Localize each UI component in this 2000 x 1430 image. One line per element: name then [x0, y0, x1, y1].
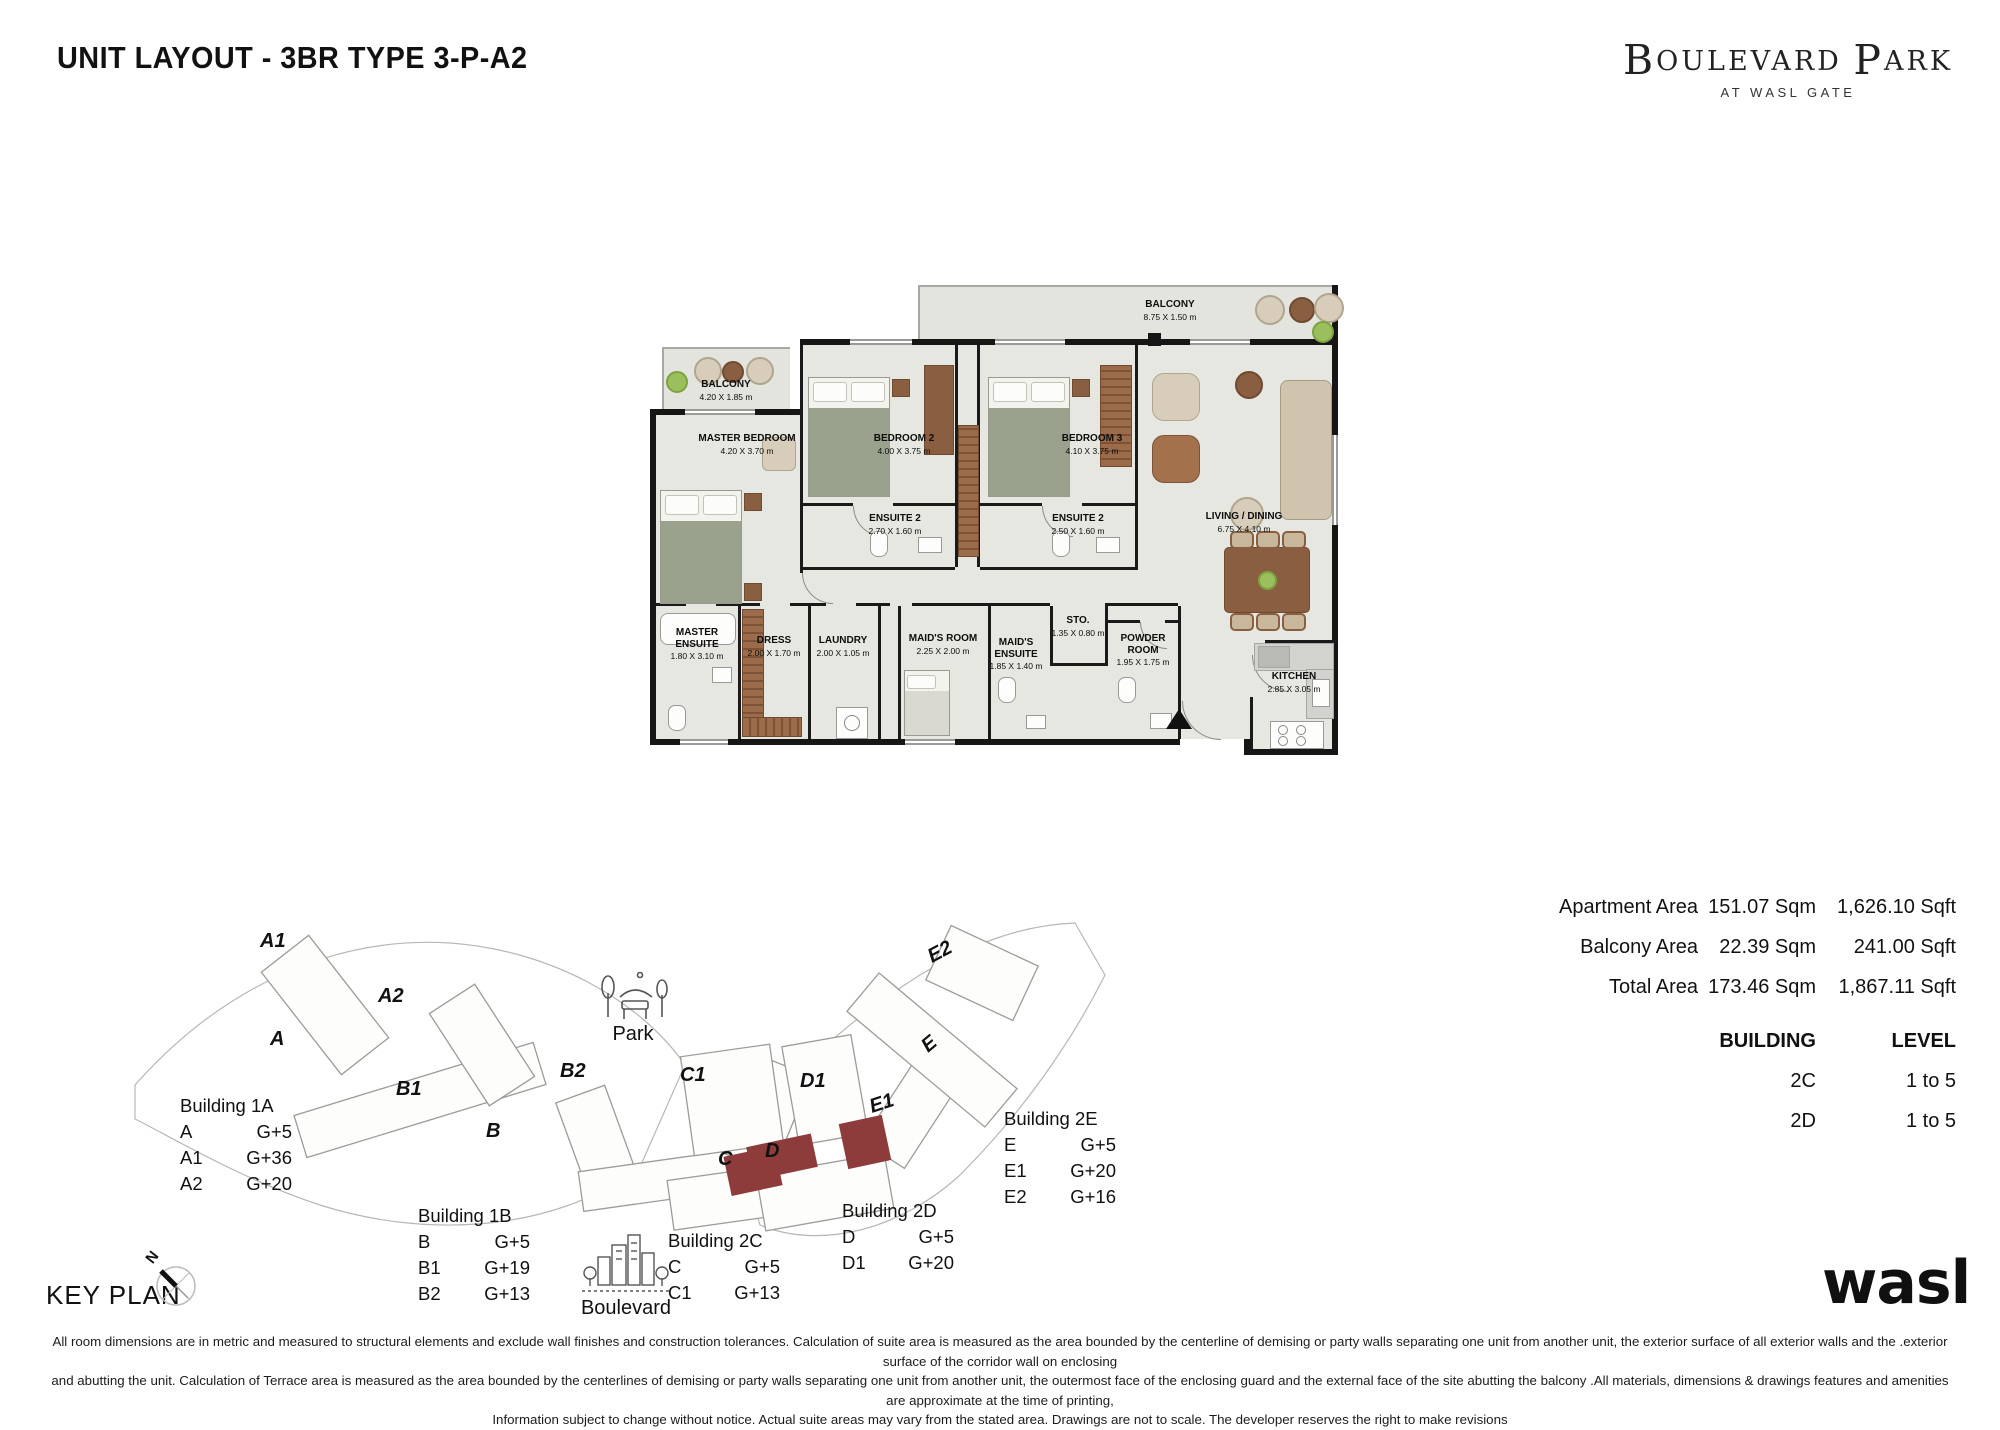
sofa: [1280, 380, 1332, 520]
building-group-1a: Building 1A AG+5 A1G+36 A2G+20: [180, 1093, 292, 1197]
room-label-maids-room: MAID'S ROOM2.25 X 2.00 m: [909, 633, 978, 657]
toilet: [1118, 677, 1136, 703]
room-label-maids-ensuite: MAID'S ENSUITE1.85 X 1.40 m: [985, 637, 1047, 673]
disclaimer-line: All room dimensions are in metric and me…: [40, 1332, 1960, 1371]
boulevard-park-logo: BOULEVARD PARK AT WASL GATE: [1620, 46, 1956, 100]
room-label-balcony-left: BALCONY4.20 X 1.85 m: [700, 379, 753, 403]
window: [905, 739, 955, 745]
balcony-chair: [1314, 293, 1344, 323]
room-label-laundry: LAUNDRY2.00 X 1.05 m: [817, 635, 870, 659]
railing: [918, 285, 1338, 287]
boulevard-label: Boulevard: [581, 1297, 671, 1319]
bedroom3-bed: [988, 377, 1070, 497]
coffee-table: [1235, 371, 1263, 399]
disclaimer: All room dimensions are in metric and me…: [40, 1332, 1960, 1430]
unit-highlight-d2: [839, 1115, 892, 1169]
side-table: [892, 379, 910, 397]
side-table: [744, 583, 762, 601]
kitchen-sink: [1258, 646, 1290, 668]
dining-chair: [1282, 531, 1306, 549]
room-label-ensuite-2b: ENSUITE 22.50 X 1.60 m: [1052, 513, 1105, 537]
table-row: Total Area173.46 Sqm1,867.11 Sqft: [1548, 976, 1956, 999]
room-label-kitchen: KITCHEN2.85 X 3.05 m: [1268, 671, 1321, 695]
wall: [1105, 606, 1108, 666]
map-label-d: D: [765, 1140, 779, 1162]
window: [995, 339, 1065, 345]
dress-wardrobe: [742, 717, 802, 737]
wall: [803, 567, 955, 570]
sink: [1026, 715, 1046, 729]
map-label-a: A: [269, 1028, 284, 1050]
wall: [980, 503, 1042, 506]
sink: [1096, 537, 1120, 553]
room-label-dress: DRESS2.00 X 1.70 m: [748, 635, 801, 659]
railing: [662, 347, 790, 349]
wall: [1105, 620, 1140, 623]
room-label-ensuite-2a: ENSUITE 22.70 X 1.60 m: [869, 513, 922, 537]
room-label-balcony-top: BALCONY8.75 X 1.50 m: [1144, 299, 1197, 323]
wall: [980, 567, 1138, 570]
building-group-2c: Building 2C CG+5 C1G+13: [668, 1228, 780, 1306]
wall: [912, 603, 1050, 606]
wall: [808, 606, 811, 739]
table-row: Balcony Area22.39 Sqm241.00 Sqft: [1548, 936, 1956, 959]
wall: [650, 409, 656, 745]
wall: [800, 345, 803, 573]
building-group-2d: Building 2D DG+5 D1G+20: [842, 1198, 954, 1276]
wall: [1082, 503, 1138, 506]
armchair: [1152, 435, 1200, 483]
wasl-logo: wasl: [1822, 1248, 1970, 1318]
wall: [893, 503, 958, 506]
map-label-b1: B1: [396, 1078, 422, 1100]
park-label: Park: [612, 1023, 654, 1045]
page-title: UNIT LAYOUT - 3BR TYPE 3-P-A2: [57, 40, 528, 76]
building-group-2e: Building 2E EG+5 E1G+20 E2G+16: [1004, 1106, 1116, 1210]
floor-plan: BALCONY8.75 X 1.50 m BALCONY4.20 X 1.85 …: [650, 285, 1340, 765]
railing: [918, 285, 920, 339]
toilet: [998, 677, 1016, 703]
wall: [1105, 603, 1178, 606]
wall: [878, 606, 881, 739]
room-label-master-ensuite: MASTER ENSUITE1.80 X 3.10 m: [666, 627, 728, 663]
dining-chair: [1230, 613, 1254, 631]
table-plant: [1258, 571, 1277, 590]
room-label-master-bedroom: MASTER BEDROOM4.20 X 3.70 m: [698, 433, 795, 457]
map-label-b2: B2: [560, 1060, 586, 1082]
wall: [803, 503, 853, 506]
balcony-door-marker: [1148, 333, 1161, 346]
side-table: [1072, 379, 1090, 397]
railing: [662, 347, 664, 413]
dining-chair: [1256, 613, 1280, 631]
wall: [738, 606, 741, 739]
map-label-a1: A1: [259, 930, 286, 952]
sink: [918, 537, 942, 553]
table-row: 2D1 to 5: [1548, 1110, 1956, 1133]
stove-burner: [1296, 725, 1306, 735]
window: [680, 739, 728, 745]
entrance-arrow: [1166, 709, 1192, 729]
armchair: [1152, 373, 1200, 421]
wardrobe: [958, 425, 979, 557]
wall: [898, 606, 901, 739]
building-level-header: BUILDINGLEVEL: [1548, 1030, 1956, 1053]
map-label-c: C: [718, 1148, 733, 1170]
washer-door: [844, 715, 860, 731]
plant: [1312, 321, 1334, 343]
map-label-c1: C1: [680, 1064, 706, 1086]
disclaimer-line: Information subject to change without no…: [40, 1410, 1960, 1430]
area-table: Apartment Area151.07 Sqm1,626.10 Sqft Ba…: [1548, 896, 1956, 1150]
wall: [856, 603, 890, 606]
sink: [712, 667, 732, 683]
maid-bed: [904, 670, 950, 736]
stove-burner: [1278, 725, 1288, 735]
balcony-chair: [1255, 295, 1285, 325]
window: [1190, 339, 1250, 345]
brand-name: BOULEVARD PARK: [1620, 46, 1956, 77]
boulevard-icon: [582, 1235, 670, 1291]
table-row: Apartment Area151.07 Sqm1,626.10 Sqft: [1548, 896, 1956, 919]
toilet: [668, 705, 686, 731]
room-label-powder-room: POWDER ROOM1.95 X 1.75 m: [1112, 633, 1174, 669]
brand-tagline: AT WASL GATE: [1620, 85, 1956, 100]
map-label-b: B: [486, 1120, 500, 1142]
wall: [1135, 345, 1138, 567]
building-group-1b: Building 1B BG+5 B1G+19 B2G+13: [418, 1203, 530, 1307]
window: [1332, 435, 1338, 525]
wall: [988, 606, 991, 739]
window: [850, 339, 912, 345]
room-label-sto: STO.1.35 X 0.80 m: [1052, 615, 1105, 639]
room-label-bedroom-3: BEDROOM 34.10 X 3.75 m: [1062, 433, 1123, 457]
plant: [666, 371, 688, 393]
side-table: [744, 493, 762, 511]
room-label-bedroom-2: BEDROOM 24.00 X 3.75 m: [874, 433, 935, 457]
stove-burner: [1296, 736, 1306, 746]
map-label-d1: D1: [800, 1070, 826, 1092]
disclaimer-line: and abutting the unit. Calculation of Te…: [40, 1371, 1960, 1410]
building-a1: [261, 935, 388, 1074]
wall: [1250, 749, 1338, 755]
wall: [1250, 697, 1253, 749]
room-label-living-dining: LIVING / DINING6.75 X 4.10 m: [1206, 511, 1283, 535]
balcony-table: [1289, 297, 1315, 323]
map-label-a2: A2: [377, 985, 404, 1007]
stove-burner: [1278, 736, 1288, 746]
master-bed: [660, 490, 742, 604]
dining-chair: [1282, 613, 1306, 631]
table-row: 2C1 to 5: [1548, 1070, 1956, 1093]
wall: [1050, 663, 1108, 666]
window: [685, 409, 755, 415]
